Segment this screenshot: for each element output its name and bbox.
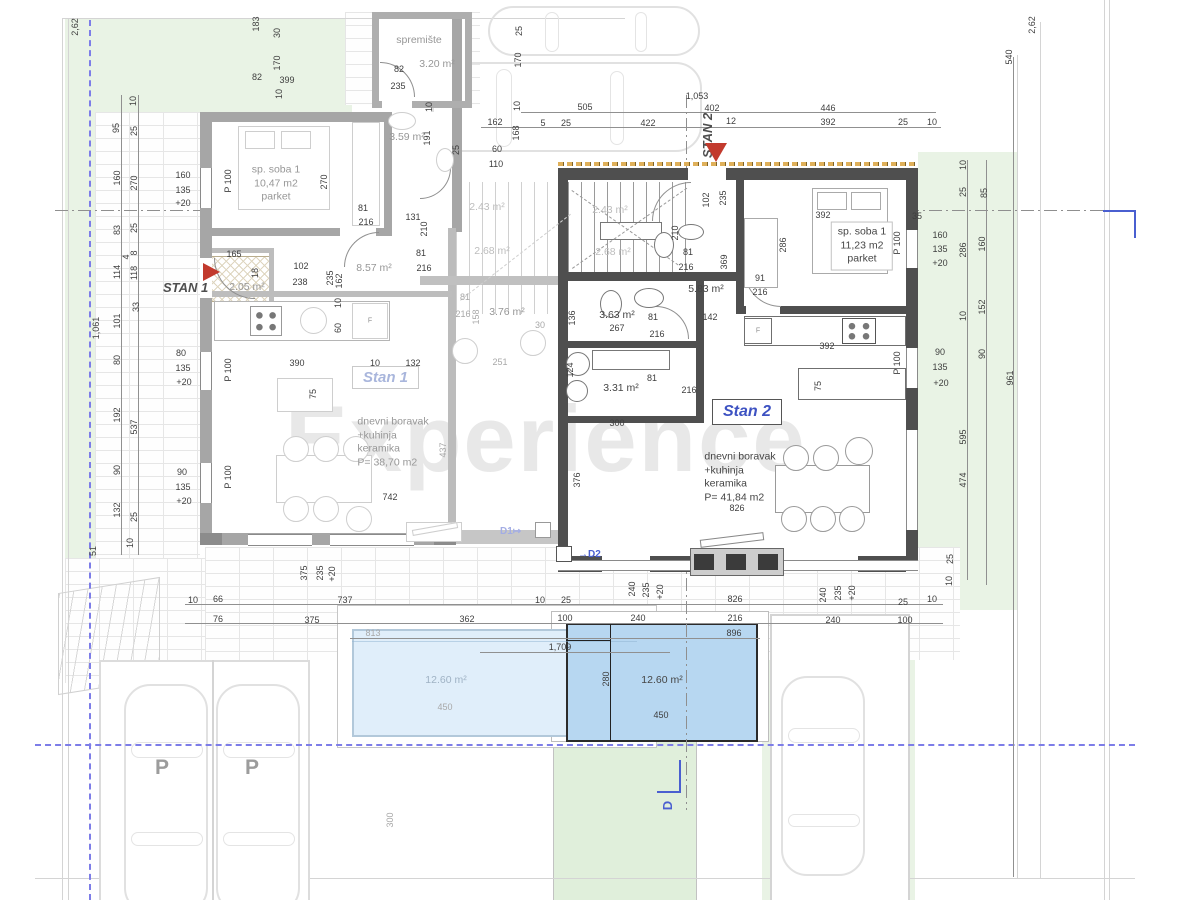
window: [906, 348, 918, 388]
stairs-area-label: 2.68 m²: [474, 245, 510, 259]
bench-block: [726, 554, 746, 570]
washer-icon: [452, 338, 478, 364]
dimension-line: [185, 623, 943, 624]
room-area-bath1-s1: 3.59 m²: [389, 131, 425, 145]
chair: [313, 436, 339, 462]
dimension-label: 300: [385, 812, 395, 827]
insulation-strip: [558, 162, 918, 166]
chair: [810, 506, 836, 532]
room-area-entry1: 2.05 m²: [229, 281, 265, 295]
pool-step-line: [566, 640, 610, 641]
wardrobe: [744, 218, 778, 288]
parking-divider: [212, 660, 214, 900]
chair: [813, 445, 839, 471]
pillow: [817, 192, 847, 210]
interior-wall: [736, 306, 746, 314]
site-area: [65, 18, 352, 113]
stairs-area-label: 2.43 m²: [592, 204, 628, 218]
dimension-line: [350, 638, 760, 639]
toilet-icon: [654, 232, 674, 258]
window: [906, 230, 918, 268]
room-area: 10,47 m2: [254, 177, 298, 189]
room-floor: parket: [261, 191, 290, 203]
pool-step-line: [352, 641, 637, 642]
interior-wall: [696, 280, 704, 423]
window-door: [906, 430, 918, 530]
room-name: sp. soba 1: [838, 226, 886, 238]
kitchen-island: [277, 378, 333, 412]
entry-arrow-stan2: [705, 143, 727, 162]
interior-wall: [558, 272, 746, 281]
living-line: keramika: [704, 478, 747, 490]
car-outline: [432, 62, 702, 152]
dimension-line: [521, 112, 936, 113]
door-label-d: D: [660, 801, 675, 810]
shower-tray: [592, 350, 670, 370]
boundary-line: [1109, 0, 1110, 900]
pillow: [245, 131, 275, 149]
car-windshield: [223, 832, 295, 846]
interior-wall: [384, 112, 392, 232]
living-line: +kuhinja: [357, 429, 396, 441]
room-label-storage: spremište: [396, 34, 442, 48]
room-area-bath2-s2: 3.31 m²: [603, 382, 639, 396]
car-windshield: [788, 814, 860, 827]
parking-label: P: [155, 756, 169, 780]
unit-title-stan2: Stan 2: [712, 399, 782, 425]
car-outline: [488, 6, 700, 56]
drain-icon: [535, 522, 551, 538]
door-opening: [382, 99, 412, 108]
door-label-d1: D1↦: [500, 526, 521, 537]
exterior-wall: [906, 388, 918, 430]
exterior-wall: [558, 168, 918, 180]
entry-label-stan1: STAN 1: [163, 280, 208, 295]
exterior-wall: [906, 168, 918, 230]
door-opening: [688, 168, 726, 180]
dimension-line: [138, 95, 139, 555]
boundary-line: [1104, 0, 1105, 900]
door-label-d2: →D2: [578, 549, 601, 560]
dimension-line: [185, 604, 943, 605]
window: [200, 168, 212, 208]
room-label-bedroom1-s1: sp. soba 1 10,47 m2 parket: [252, 164, 300, 205]
room-label-living2: dnevni boravak +kuhinja keramika P= 41,8…: [704, 451, 775, 506]
room-area: 11,23 m2: [840, 239, 883, 251]
living-line: P= 41,84 m2: [704, 492, 764, 504]
living-line: P= 38,70 m2: [357, 457, 417, 469]
car-windshield: [545, 12, 559, 52]
pool-area-label: 12.60 m²: [641, 674, 682, 688]
site-area: [918, 152, 1018, 610]
car-windshield: [788, 728, 860, 743]
room-floor: parket: [847, 253, 876, 265]
partition-wall: [269, 248, 274, 306]
car-windshield: [635, 12, 647, 52]
toilet-icon: [436, 148, 454, 172]
washer-icon: [520, 330, 546, 356]
living-line: keramika: [357, 443, 400, 455]
washer-icon: [566, 380, 588, 402]
dimension-line: [1013, 57, 1014, 877]
dimension-label: 12: [726, 116, 736, 126]
car-windshield: [496, 69, 512, 147]
living-line: dnevni boravak: [704, 451, 775, 463]
room-area-wc2: 5.83 m²: [688, 283, 724, 297]
pillow: [851, 192, 881, 210]
chair: [781, 506, 807, 532]
window: [200, 352, 212, 390]
room-area-bath2-s1: 3.76 m²: [489, 306, 525, 320]
pool-area-label: 12.60 m²: [425, 674, 466, 688]
dimension-line: [986, 160, 987, 585]
wall-pier: [200, 533, 222, 545]
entry-arrow-stan1: [203, 263, 220, 281]
room-label-living1: dnevni boravak +kuhinja keramika P= 38,7…: [357, 416, 428, 471]
living-line: dnevni boravak: [357, 416, 428, 428]
room-area-bath1-s2: 3.63 m²: [599, 309, 635, 323]
bench-block: [758, 554, 778, 570]
parking-label: P: [245, 756, 259, 780]
car-windshield: [131, 832, 203, 846]
car-outline: [216, 684, 300, 900]
interior-wall: [780, 306, 908, 314]
car-outline: [781, 676, 865, 876]
room-label-bedroom1-s2: sp. soba 1 11,23 m2 parket: [831, 222, 893, 271]
boundary-line: [1040, 22, 1041, 878]
terrace-paving: [95, 112, 200, 560]
interior-wall: [558, 341, 704, 348]
chair: [845, 437, 873, 465]
car-windshield: [610, 71, 624, 145]
boundary-line-dashed: [35, 744, 1135, 746]
dimension-label: 392: [820, 117, 835, 127]
pillow: [281, 131, 311, 149]
sink-icon: [634, 288, 664, 308]
dimension-line: [480, 652, 670, 653]
room-area-storage: 3.20 m²: [419, 58, 455, 72]
dimension-label: 25: [898, 117, 908, 127]
washer-icon: [566, 352, 590, 376]
chair: [839, 506, 865, 532]
chair: [346, 506, 372, 532]
fridge-label: F: [756, 328, 760, 335]
stove-icon: [250, 306, 282, 336]
unit-title-stan1: Stan 1: [352, 366, 419, 389]
section-mark: [657, 791, 681, 793]
dimension-label: 2,62: [1027, 16, 1037, 34]
chair: [283, 436, 309, 462]
stove-icon: [842, 318, 876, 344]
chair: [313, 496, 339, 522]
sink-icon: [678, 224, 704, 240]
centerline-end-mark: [1134, 210, 1136, 238]
window: [248, 534, 312, 546]
exterior-wall: [200, 112, 392, 122]
partition-wall: [212, 248, 274, 253]
room-area-hall1: 8.57 m²: [356, 262, 392, 276]
car-outline: [124, 684, 208, 900]
window: [200, 463, 212, 503]
kitchen-island: [798, 368, 906, 400]
room-name: sp. soba 1: [252, 164, 300, 176]
boundary-line: [68, 18, 69, 900]
interior-wall: [558, 416, 704, 423]
interior-wall: [736, 180, 744, 314]
chair: [783, 445, 809, 471]
fridge-label: F: [368, 318, 372, 325]
floorplan-canvas: P P Experience: [0, 0, 1200, 900]
stairs-area-label: 2.43 m²: [469, 201, 505, 215]
dimension-line: [121, 95, 122, 555]
boundary-line-dashed: [89, 20, 91, 900]
sink-icon: [300, 307, 327, 334]
boundary-line: [62, 18, 63, 900]
centerline-end-mark: [1103, 210, 1136, 212]
stairs-area-label: 2.68 m²: [595, 246, 631, 260]
dimension-label: 10: [927, 117, 937, 127]
wardrobe: [352, 122, 380, 226]
pool-step-line: [610, 623, 611, 742]
sink-icon: [388, 112, 416, 130]
section-mark: [679, 760, 681, 793]
chair: [283, 496, 309, 522]
dimension-line: [967, 160, 968, 580]
bench-block: [694, 554, 714, 570]
window: [330, 534, 414, 546]
living-line: +kuhinja: [704, 464, 743, 476]
boundary-line: [1017, 55, 1018, 878]
drain-icon: [556, 546, 572, 562]
